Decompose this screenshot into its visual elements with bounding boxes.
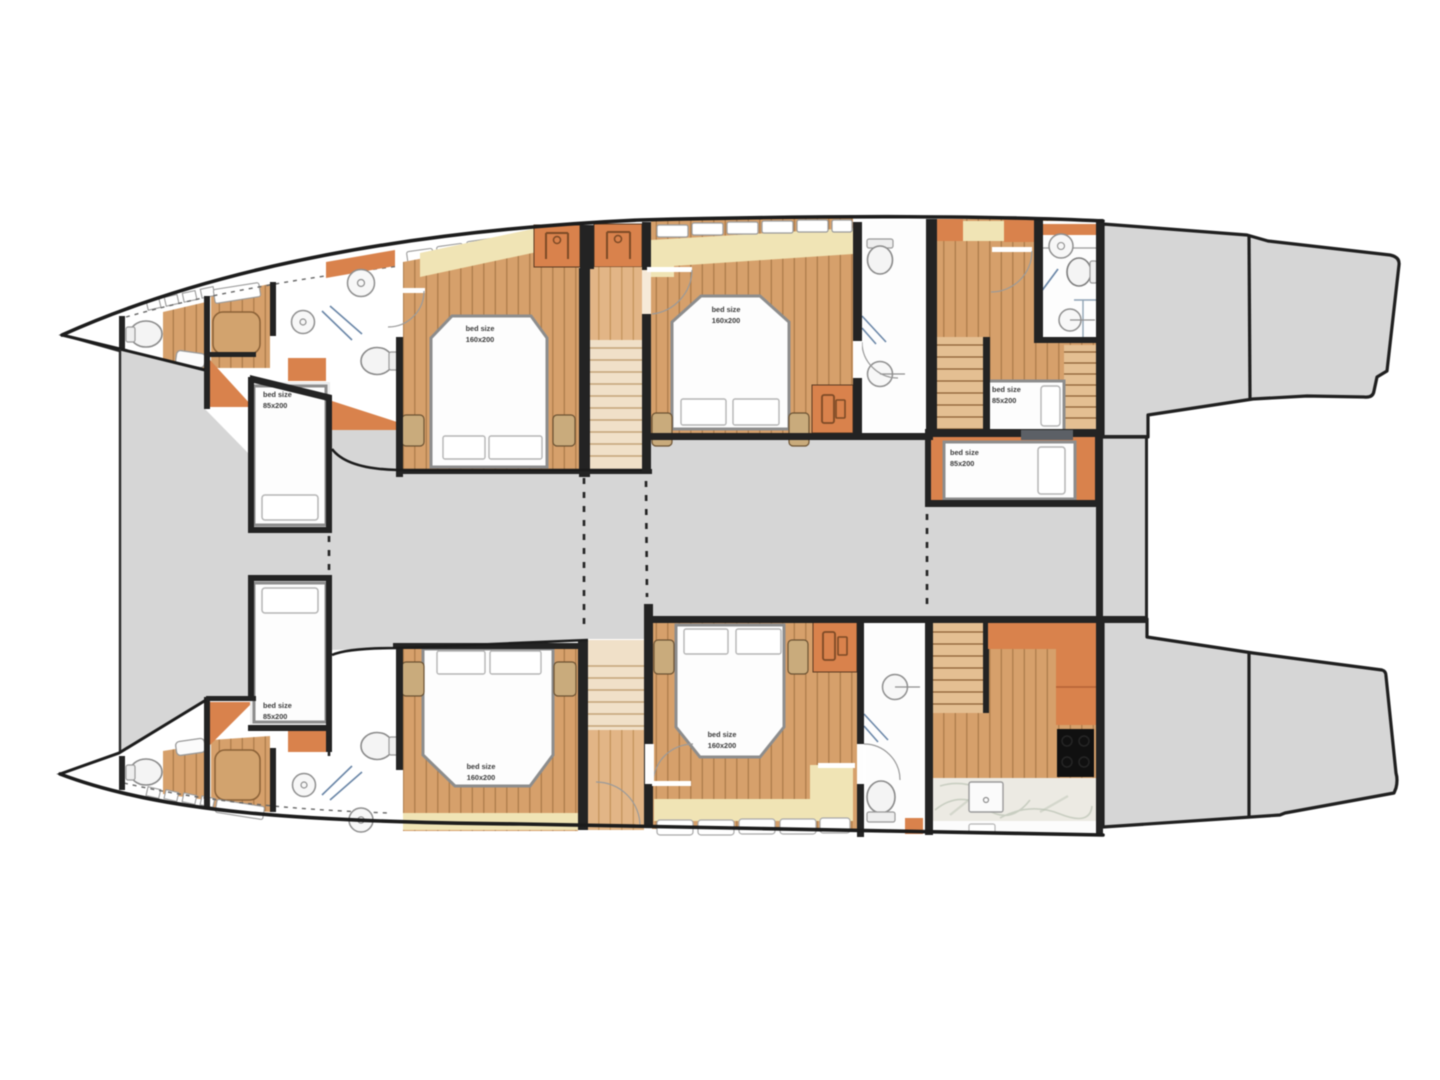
svg-text:bed size: bed size [992, 385, 1021, 394]
svg-text:bed size: bed size [263, 701, 292, 710]
svg-text:85x200: 85x200 [992, 396, 1016, 405]
svg-text:85x200: 85x200 [263, 712, 287, 721]
svg-text:85x200: 85x200 [263, 401, 287, 410]
svg-text:160x200: 160x200 [466, 335, 494, 344]
svg-text:85x200: 85x200 [950, 459, 974, 468]
svg-text:bed size: bed size [950, 448, 979, 457]
svg-text:160x200: 160x200 [708, 741, 736, 750]
svg-text:160x200: 160x200 [712, 316, 740, 325]
svg-text:160x200: 160x200 [467, 773, 495, 782]
svg-text:bed size: bed size [712, 305, 741, 314]
svg-text:bed size: bed size [466, 324, 495, 333]
svg-text:bed size: bed size [708, 730, 737, 739]
svg-text:bed size: bed size [263, 390, 292, 399]
svg-text:bed size: bed size [467, 762, 496, 771]
